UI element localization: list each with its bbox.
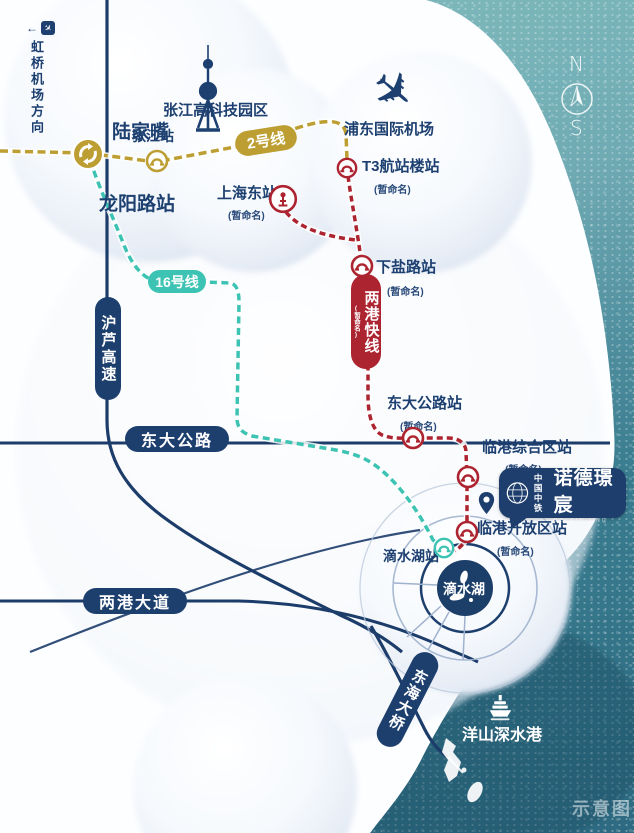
dongda-road-badge: 东大公路 bbox=[125, 426, 229, 452]
lianggang-express-badge-label: 两港快线 bbox=[361, 290, 382, 354]
ship-icon bbox=[487, 693, 514, 724]
yangshan-port-label: 洋山深水港 bbox=[462, 727, 542, 745]
brand-callout: 中国 中铁 诺德璟宸 GOLDIN JING bbox=[499, 468, 626, 518]
hongqiao-direction-label: 虹桥机场方向 bbox=[27, 40, 46, 136]
airport-sign-icon: ✈ bbox=[41, 21, 55, 35]
lianggang-express-badge-note: (暂命名) bbox=[351, 305, 361, 339]
callout-company: 中国 中铁 bbox=[534, 473, 550, 513]
pudong-airport-label: 浦东国际机场 bbox=[344, 122, 434, 139]
line16-badge: 16号线 bbox=[148, 270, 206, 293]
compass-rose bbox=[562, 84, 592, 114]
lingang-comprehensive-metro-icon bbox=[456, 465, 480, 489]
watermark: 示意图 bbox=[572, 795, 632, 821]
zhangjiang-metro-icon bbox=[145, 149, 169, 173]
location-pin-icon bbox=[478, 491, 495, 515]
oriental-pearl-tower-icon bbox=[189, 44, 227, 138]
compass-south-label: S bbox=[570, 116, 583, 140]
callout-company-line2: 中铁 bbox=[534, 493, 550, 513]
dishui-lake-metro-icon bbox=[433, 537, 455, 559]
map-artwork bbox=[0, 0, 634, 833]
xiayanlu-metro-icon bbox=[350, 254, 374, 278]
lingang-open-metro-icon bbox=[455, 520, 479, 544]
xiayanlu-station-note: (暂命名) bbox=[387, 283, 424, 298]
callout-brand-name: 诺德璟宸 bbox=[554, 463, 620, 517]
dongda-road-station-label: 东大公路站 bbox=[387, 396, 462, 413]
t3-terminal-station-label: T3航站楼站 bbox=[362, 159, 440, 176]
dishui-lake-station-label: 滴水湖站 bbox=[383, 549, 439, 564]
lianggang-express-badge: 两港快线 (暂命名) bbox=[351, 274, 381, 369]
zhangjiang-hitech-label: 张江高科技园区 bbox=[163, 103, 268, 120]
dishui-lake-label: 滴水湖 bbox=[443, 582, 485, 597]
callout-company-line1: 中国 bbox=[534, 473, 550, 493]
shanghai-east-station-note: (暂命名) bbox=[228, 207, 265, 222]
longyanglu-station-label: 龙阳路站 bbox=[99, 195, 175, 216]
t3-metro-icon bbox=[336, 157, 358, 179]
small-plane-icon: ✈ bbox=[42, 21, 55, 34]
hulu-expressway-badge: 沪芦高速 bbox=[95, 297, 121, 400]
compass-north-label: N bbox=[569, 52, 584, 76]
crec-globe-icon bbox=[505, 478, 530, 508]
left-arrow-icon: ← bbox=[26, 21, 38, 35]
location-map: ← ✈ 虹桥机场方向 陆家嘴 龙阳路站 张江高科技园区 张江站 ✈ 浦东国际机场… bbox=[0, 0, 634, 833]
shanghai-east-railway-icon bbox=[268, 184, 298, 214]
dongda-road-metro-icon bbox=[401, 426, 425, 450]
t3-terminal-station-note: (暂命名) bbox=[374, 181, 411, 196]
longyanglu-interchange-icon bbox=[71, 137, 105, 171]
callout-brand-english: GOLDIN JING bbox=[554, 518, 620, 524]
lianggang-avenue-badge: 两港大道 bbox=[83, 588, 187, 614]
callout-brand-block: 诺德璟宸 GOLDIN JING bbox=[554, 463, 620, 524]
zhangjiang-station-label: 张江站 bbox=[132, 129, 174, 144]
lingang-comprehensive-station-label: 临港综合区站 bbox=[482, 440, 572, 457]
xiayanlu-station-label: 下盐路站 bbox=[376, 260, 436, 277]
lingang-open-station-note: (暂命名) bbox=[497, 543, 534, 558]
